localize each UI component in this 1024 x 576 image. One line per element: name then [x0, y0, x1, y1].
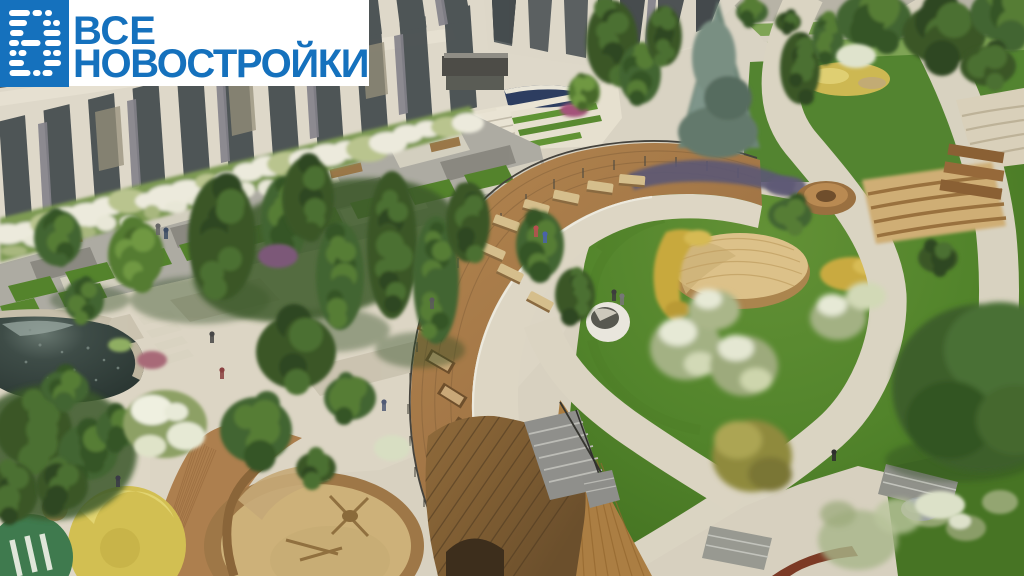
svg-text:НОВОСТРОЙКИ: НОВОСТРОЙКИ	[73, 40, 368, 86]
